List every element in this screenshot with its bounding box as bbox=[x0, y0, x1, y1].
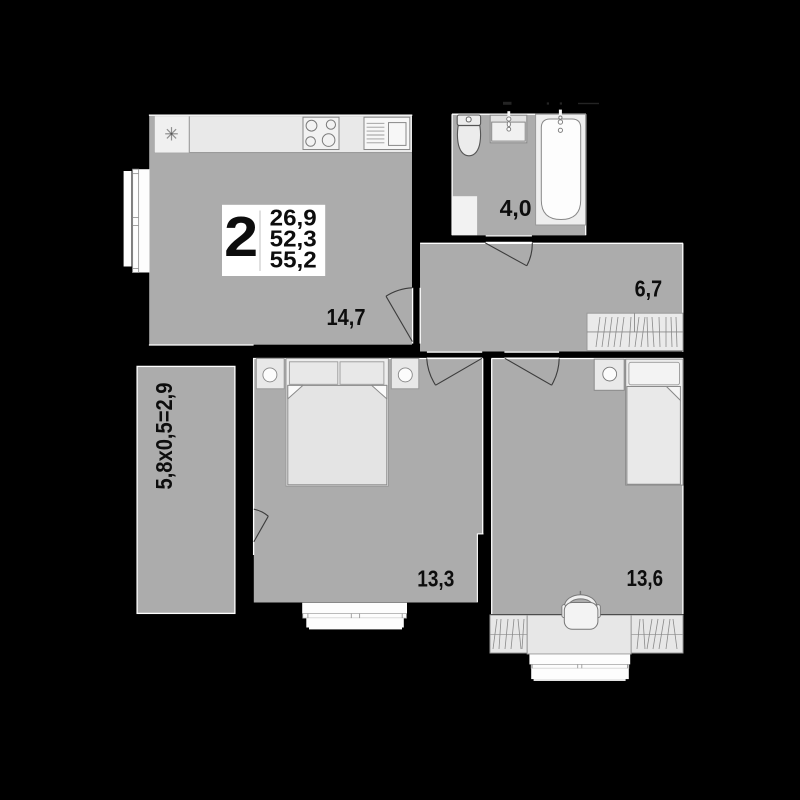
svg-text:14,7: 14,7 bbox=[327, 304, 366, 330]
svg-text:13,3: 13,3 bbox=[417, 566, 454, 592]
svg-text:13,6: 13,6 bbox=[627, 565, 664, 591]
svg-text:5,8x0,5=2,9: 5,8x0,5=2,9 bbox=[151, 383, 177, 490]
svg-text:55,2: 55,2 bbox=[270, 247, 317, 273]
svg-text:4,0: 4,0 bbox=[500, 195, 532, 221]
svg-text:6,7: 6,7 bbox=[635, 275, 663, 301]
svg-text:2: 2 bbox=[224, 205, 258, 268]
